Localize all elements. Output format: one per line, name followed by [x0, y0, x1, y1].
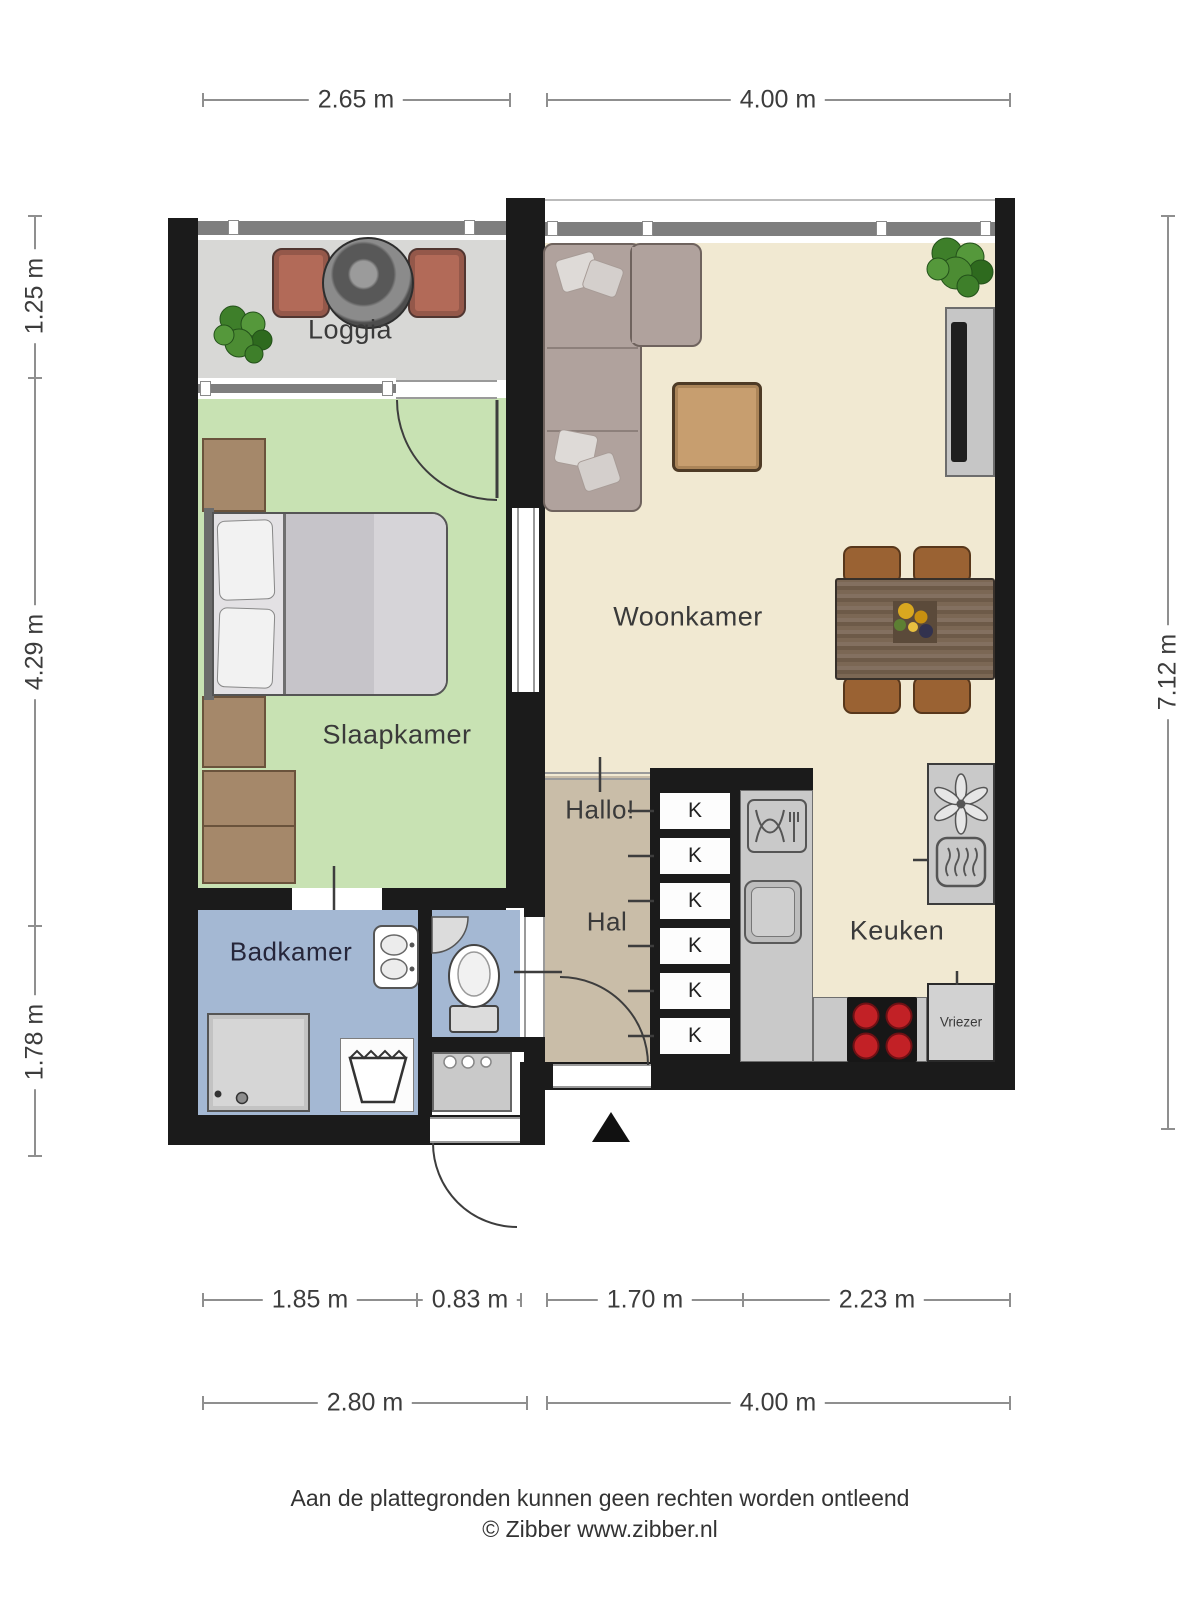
- shower-drain: [215, 1091, 248, 1104]
- dim-tick: [202, 1293, 204, 1307]
- loggia-door-arc: [397, 400, 497, 500]
- room-label-keuken: Keuken: [850, 916, 945, 947]
- dim-tick: [546, 93, 548, 107]
- dim-label-left-3: 1.78 m: [19, 995, 52, 1089]
- dim-tick: [546, 1396, 548, 1410]
- laundry-basket-icon: [350, 1051, 406, 1102]
- dim-tick: [1009, 93, 1011, 107]
- toilet: [449, 945, 499, 1032]
- dim-label-top-1: 2.65 m: [309, 86, 403, 115]
- dim-tick: [1009, 1293, 1011, 1307]
- room-label-hallo: Hallo!: [565, 795, 634, 826]
- double-washbasin: [374, 926, 418, 988]
- dim-tick: [509, 93, 511, 107]
- plant-loggia: [214, 306, 272, 363]
- dish-rack-icon: [748, 800, 806, 852]
- extractor-fan-icon: [932, 774, 989, 834]
- room-label-slaapkamer: Slaapkamer: [322, 720, 471, 751]
- dim-label-b1-4: 2.23 m: [830, 1286, 924, 1315]
- room-label-badkamer: Badkamer: [230, 937, 353, 968]
- dim-label-top-2: 4.00 m: [731, 86, 825, 115]
- dim-tick: [1161, 215, 1175, 217]
- dim-tick: [28, 1155, 42, 1157]
- stove-burners: [854, 1004, 912, 1059]
- table-flowers: [893, 601, 937, 643]
- dim-label-b1-2: 0.83 m: [423, 1286, 517, 1315]
- entry-arrow: [592, 1112, 630, 1142]
- dim-tick: [520, 1293, 522, 1307]
- dim-label-left-1: 1.25 m: [19, 249, 52, 343]
- oven-icon: [937, 838, 985, 886]
- room-label-loggia: Loggia: [308, 315, 392, 346]
- room-label-vriezer: Vriezer: [940, 1015, 982, 1030]
- dim-label-b2-1: 2.80 m: [318, 1389, 412, 1418]
- floorplan-page: K K K K K K: [0, 0, 1200, 1600]
- room-label-hal: Hal: [587, 907, 628, 938]
- dim-label-right-1: 7.12 m: [1152, 625, 1185, 719]
- dim-tick: [1009, 1396, 1011, 1410]
- dim-tick: [1161, 1128, 1175, 1130]
- door-ticks: [334, 757, 957, 1036]
- room-label-woonkamer: Woonkamer: [613, 602, 763, 633]
- cabinet-items: [444, 1056, 491, 1068]
- dim-label-b1-1: 1.85 m: [263, 1286, 357, 1315]
- dim-tick: [546, 1293, 548, 1307]
- dim-label-b1-3: 1.70 m: [598, 1286, 692, 1315]
- exterior-door-arc: [433, 1143, 517, 1227]
- dim-tick: [526, 1396, 528, 1410]
- dim-label-left-2: 4.29 m: [19, 605, 52, 699]
- footer-copyright: © Zibber www.zibber.nl: [482, 1516, 718, 1543]
- dim-tick: [202, 1396, 204, 1410]
- dim-tick: [28, 215, 42, 217]
- footer-disclaimer: Aan de plattegronden kunnen geen rechten…: [291, 1485, 910, 1512]
- dim-label-b2-2: 4.00 m: [731, 1389, 825, 1418]
- dim-tick: [202, 93, 204, 107]
- plant-living: [927, 238, 993, 297]
